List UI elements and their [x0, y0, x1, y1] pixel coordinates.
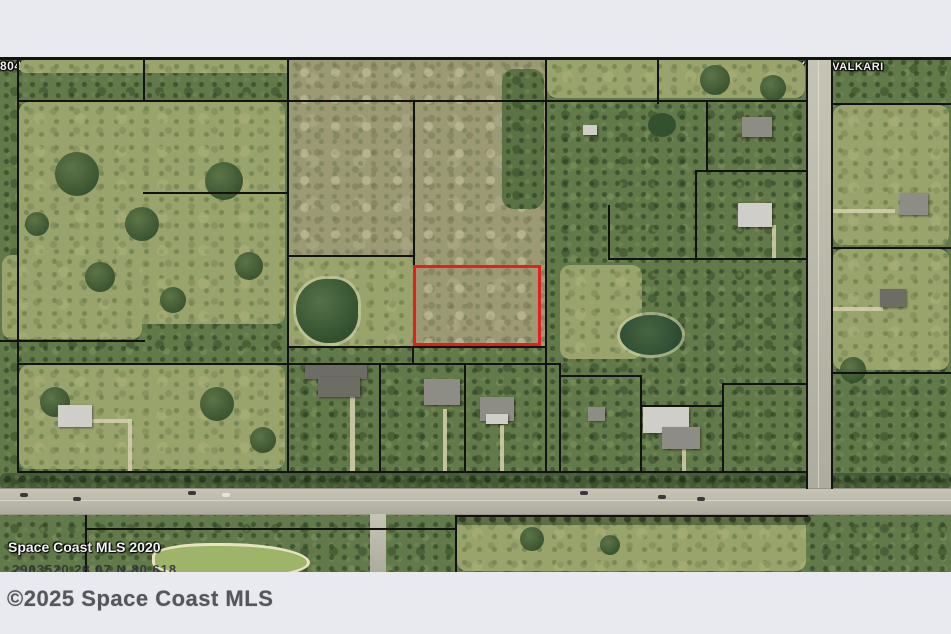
grass-field	[833, 105, 949, 245]
tree-clump	[85, 262, 115, 292]
parcel-boundary	[287, 57, 289, 472]
house-roof	[880, 289, 906, 307]
tree-clump	[25, 212, 49, 236]
house-roof	[742, 117, 772, 137]
copyright-text: ©2025 Space Coast MLS	[7, 586, 273, 612]
highlight-box-parcel-819	[413, 265, 541, 346]
driveway	[500, 425, 504, 471]
house-roof	[583, 125, 597, 135]
vehicle	[222, 493, 230, 497]
parcel-boundary	[831, 372, 951, 374]
tree-clump	[840, 357, 866, 383]
tree-clump	[700, 65, 730, 95]
tree-clump	[200, 387, 234, 421]
grass-field	[457, 517, 806, 571]
parcel-boundary	[287, 255, 415, 257]
tree-clump	[600, 535, 620, 555]
parcel-boundary	[143, 192, 289, 194]
house-roof	[424, 379, 460, 405]
photo-watermark: Space Coast MLS 2020	[8, 539, 161, 555]
parcel-boundary	[143, 57, 145, 102]
parcel-boundary	[640, 405, 724, 407]
tree-clump	[235, 252, 263, 280]
parcel-boundary	[17, 471, 808, 473]
valkaria-road	[0, 488, 951, 515]
parcel-boundary	[806, 57, 808, 489]
house-roof	[486, 414, 508, 424]
pond	[648, 113, 676, 137]
driveway	[443, 409, 447, 471]
parcel-boundary	[831, 247, 951, 249]
parcel-boundary	[287, 346, 547, 348]
house-roof	[588, 407, 605, 421]
tree-clump	[205, 162, 243, 200]
letterbox-top	[0, 0, 951, 57]
tree-clump	[55, 152, 99, 196]
parcel-boundary	[455, 515, 808, 517]
driveway	[772, 225, 776, 259]
tree-clump	[160, 287, 186, 313]
parcel-boundary	[85, 528, 457, 530]
parcel-boundary	[413, 100, 415, 267]
footer-bar: ©2025 Space Coast MLS	[0, 572, 951, 634]
house-roof	[662, 427, 700, 449]
road-center-line	[0, 500, 951, 501]
parcel-boundary	[608, 205, 610, 260]
photo-footer-line-clipped: 2903520 28.07 N 80.618	[12, 562, 177, 572]
parcel-boundary	[379, 363, 381, 472]
vehicle	[697, 497, 705, 501]
parcel-boundary	[17, 57, 19, 472]
driveway	[833, 307, 883, 311]
driveway	[128, 419, 132, 471]
parcel-boundary	[706, 100, 708, 172]
tree-clump	[125, 207, 159, 241]
mls-listing-photo: 804 774 825 832 758 545 766 809 801 759.…	[0, 0, 951, 634]
pond	[620, 315, 682, 355]
parcel-boundary	[831, 57, 833, 489]
driveway	[350, 387, 355, 471]
pond	[296, 279, 358, 343]
parcel-boundary	[640, 375, 642, 472]
vehicle	[73, 497, 81, 501]
tree-clump	[760, 75, 786, 101]
house-roof	[900, 193, 928, 215]
parcel-boundary	[17, 100, 807, 102]
house-roof	[318, 377, 360, 397]
vehicle	[580, 491, 588, 495]
parcel-boundary	[722, 383, 808, 385]
vehicle	[658, 495, 666, 499]
parcel-boundary	[559, 375, 642, 377]
vehicle	[20, 493, 28, 497]
house-roof	[738, 203, 772, 227]
road-center-line	[818, 57, 819, 488]
parcel-boundary	[831, 103, 951, 105]
tree-clump	[520, 527, 544, 551]
parcel-boundary	[695, 170, 808, 172]
side-road	[370, 514, 386, 572]
aerial-parcel-map: 804 774 825 832 758 545 766 809 801 759.…	[0, 57, 951, 572]
parcel-boundary	[722, 383, 724, 472]
vehicle	[188, 491, 196, 495]
parcel-boundary	[412, 346, 414, 365]
driveway	[833, 209, 895, 213]
parcel-boundary	[695, 170, 697, 260]
parcel-boundary	[17, 363, 561, 365]
house-roof	[58, 405, 92, 427]
corey-road	[806, 57, 833, 488]
parcel-boundary	[455, 515, 457, 572]
parcel-boundary	[0, 340, 145, 342]
tree-stand	[502, 69, 544, 209]
parcel-boundary	[657, 57, 659, 104]
driveway	[92, 419, 130, 423]
parcel-boundary	[545, 57, 547, 473]
tree-clump	[250, 427, 276, 453]
parcel-boundary	[559, 363, 561, 472]
parcel-boundary	[464, 363, 466, 472]
grass-field	[2, 255, 142, 339]
parcel-boundary	[608, 258, 808, 260]
road-label-valkaria: VALKARI	[832, 61, 884, 73]
